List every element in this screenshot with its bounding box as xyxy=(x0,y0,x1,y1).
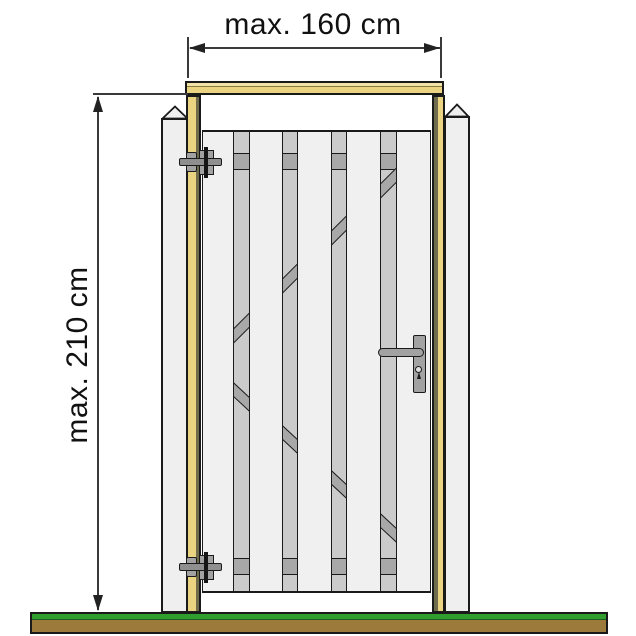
gate-gap xyxy=(283,132,297,591)
lower-brace-segment xyxy=(234,378,249,416)
lever-handle-icon xyxy=(378,348,424,357)
gate-gap xyxy=(234,132,249,591)
width-arrow-right-icon xyxy=(424,43,440,53)
hinge-pin xyxy=(204,552,208,583)
keyhole-icon xyxy=(415,366,422,373)
height-dimension-line xyxy=(97,97,99,610)
width-dimension-label: max. 160 cm xyxy=(188,8,438,42)
top-rail-segment xyxy=(283,153,297,170)
lower-brace-segment xyxy=(381,509,396,547)
top-beam xyxy=(185,81,444,95)
gate-plank xyxy=(202,132,234,591)
gate-installation-diagram: max. 160 cm max. 210 cm xyxy=(0,0,636,636)
upper-brace-segment xyxy=(283,259,297,298)
width-arrow-left-icon xyxy=(189,43,205,53)
ground xyxy=(30,612,608,634)
bottom-rail-segment xyxy=(332,558,346,575)
top-rail-segment xyxy=(332,153,346,170)
gate-plank xyxy=(346,132,381,591)
bottom-rail-segment xyxy=(381,558,396,575)
lower-brace-segment xyxy=(283,420,297,458)
right-frame-post-shadow-edge xyxy=(434,97,438,611)
hinge-bolt-bar xyxy=(179,158,222,166)
height-extension-line-top xyxy=(93,93,188,95)
gate-plank xyxy=(249,132,283,591)
height-arrow-down-icon xyxy=(93,595,103,611)
gate-gap xyxy=(381,132,396,591)
bottom-rail-segment xyxy=(283,558,297,575)
upper-brace-segment xyxy=(332,211,346,250)
top-rail-segment xyxy=(381,153,396,170)
bottom-rail-segment xyxy=(234,558,249,575)
right-frame-post xyxy=(432,95,445,613)
right-concrete-post xyxy=(444,116,470,613)
lower-brace-segment xyxy=(332,465,346,503)
top-rail-segment xyxy=(234,153,249,170)
width-extension-line-right xyxy=(440,37,442,78)
lock-backplate xyxy=(413,335,426,393)
gate-leaf xyxy=(202,130,431,593)
gate-plank xyxy=(297,132,332,591)
soil-strip xyxy=(32,620,606,632)
height-arrow-up-icon xyxy=(93,96,103,112)
height-dimension-label: max. 210 cm xyxy=(61,245,95,465)
top-beam-top-face xyxy=(187,83,442,87)
width-dimension-line xyxy=(190,47,440,49)
hinge-bolt-bar xyxy=(179,563,222,571)
gate-gap xyxy=(332,132,346,591)
hinge-pin xyxy=(204,147,208,178)
left-concrete-post xyxy=(161,118,189,613)
upper-brace-segment xyxy=(234,308,249,347)
